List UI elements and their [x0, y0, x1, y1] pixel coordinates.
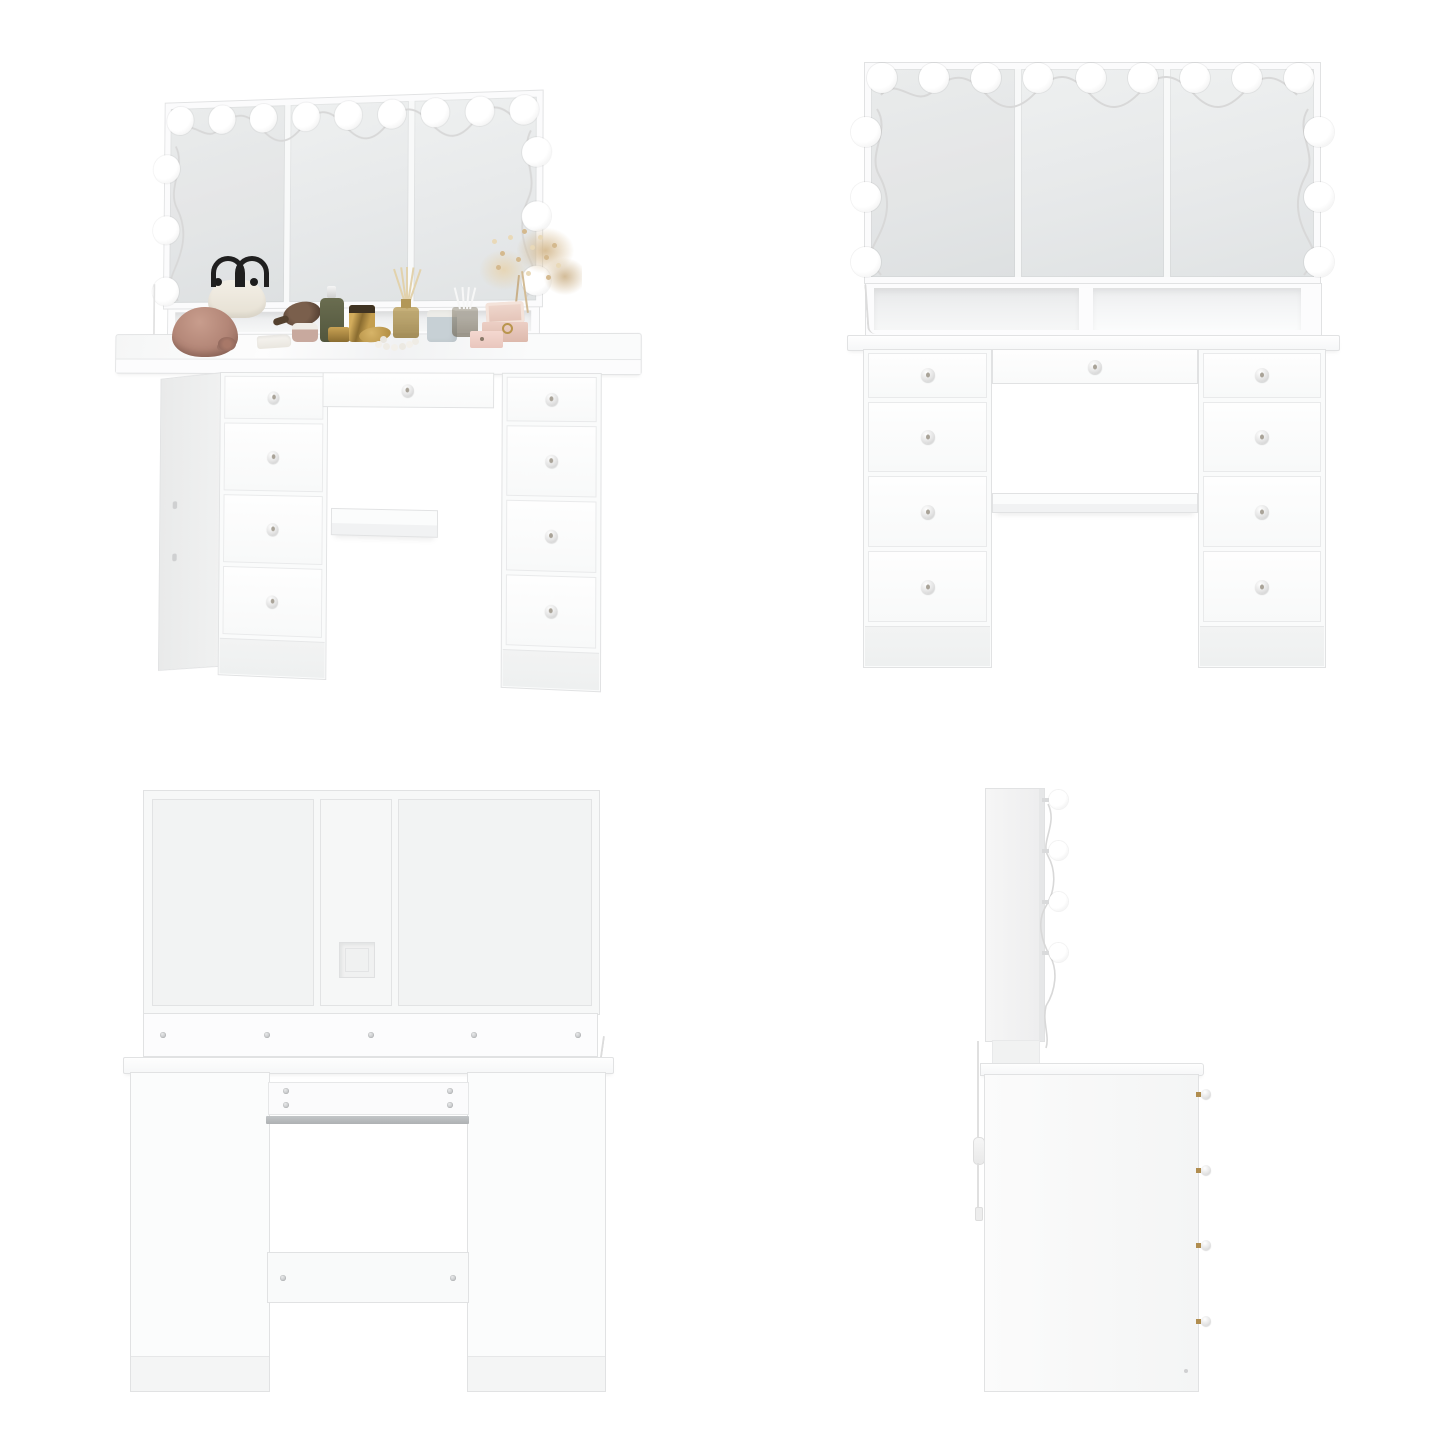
light-bulb-icon [154, 155, 181, 184]
drawer-knob [268, 391, 280, 404]
mirror-left-bulbs [851, 117, 881, 277]
drawer-knob [1196, 1239, 1212, 1251]
light-bulb-icon [1049, 892, 1068, 911]
cabinet-side-panel [984, 1074, 1199, 1392]
screw-icon [368, 1032, 374, 1038]
back-panel-left [152, 799, 314, 1006]
drawer [224, 422, 324, 492]
left-drawer-pedestal [863, 349, 992, 668]
vanity-angled-view [75, 55, 655, 715]
light-bulb-icon [1284, 63, 1314, 93]
mirror-top-bulbs [867, 63, 1314, 93]
light-bulb-icon [153, 216, 180, 245]
light-bulb-icon [971, 63, 1001, 93]
knee-space-shelf [992, 493, 1198, 513]
screw-icon [447, 1088, 453, 1094]
light-bulb-icon [1049, 943, 1068, 962]
cabinet-left-side-panel [158, 372, 223, 671]
light-bulb-icon [1304, 182, 1334, 212]
drawer-knob [1255, 580, 1269, 594]
screw-icon [264, 1032, 270, 1038]
drawer-knob [545, 454, 558, 467]
mirror-center-pane [1015, 69, 1165, 277]
vanity-back-view [120, 785, 615, 1397]
light-bulb-icon [1232, 63, 1262, 93]
lower-crossbar [267, 1252, 469, 1303]
left-drawer-pedestal [218, 372, 329, 680]
light-bulb-icon [919, 63, 949, 93]
right-drawer-stack [1199, 350, 1325, 625]
drawer-slide-rail [266, 1116, 469, 1124]
left-drawer-stack [864, 350, 991, 625]
vanity-side-view [960, 785, 1280, 1397]
drawer-knob [921, 505, 935, 519]
light-bulb-icon [1049, 841, 1068, 860]
shelf-compartment [1093, 288, 1301, 330]
mirror-back-panel [143, 790, 600, 1015]
light-bulb-icon [421, 98, 450, 128]
light-bulb-icon [851, 182, 881, 212]
pedestal-plinth [865, 626, 990, 666]
light-bulb-icon [522, 266, 551, 296]
drawer-knob [921, 368, 935, 382]
light-bulb-icon [334, 101, 362, 131]
mirror-right-bulbs [522, 137, 552, 296]
drawer-knob [1255, 505, 1269, 519]
mirror-left-pane [871, 69, 1015, 277]
screw-icon [283, 1102, 289, 1108]
mirror-right-pane [1164, 69, 1314, 277]
power-outlet-mark [172, 553, 177, 561]
drawer-knob [401, 384, 413, 397]
drawer-knob [1196, 1315, 1212, 1327]
light-bulb-icon [522, 137, 551, 167]
light-bulb-icon [292, 102, 320, 132]
power-outlet-mark [173, 501, 177, 509]
drawer-knob [1255, 368, 1269, 382]
drawer-knob [267, 451, 279, 464]
foot-screw [1184, 1369, 1188, 1373]
right-drawer-pedestal [1198, 349, 1326, 668]
open-shelf-hutch [865, 283, 1322, 337]
light-bulb-icon [1304, 117, 1334, 147]
back-panel-right [398, 799, 592, 1006]
screw-icon [447, 1102, 453, 1108]
drawer [868, 353, 987, 398]
left-drawer-stack [219, 373, 327, 641]
light-bulb-icon [465, 96, 494, 126]
vanity-angled-structure [109, 54, 655, 721]
screw-icon [575, 1032, 581, 1038]
right-pedestal-back [467, 1072, 606, 1392]
light-bulb-icon [1180, 63, 1210, 93]
drawer [506, 500, 597, 573]
drawer [224, 376, 323, 420]
light-bulb-icon [1023, 63, 1053, 93]
drawer-knob [921, 430, 935, 444]
pedestal-plinth [503, 649, 599, 690]
drawer [868, 402, 987, 473]
product-image-canvas [0, 0, 1445, 1445]
drawer-knobs-profile [1196, 1088, 1216, 1327]
trifold-mirror [865, 63, 1320, 283]
drawer [868, 476, 987, 547]
drawer-knob [1196, 1088, 1212, 1100]
cord-plug [975, 1207, 983, 1221]
mirror-side-profile [985, 788, 1045, 1042]
drawer [507, 377, 597, 422]
drawer [1203, 476, 1321, 547]
mirror-side-bulbs [1048, 790, 1068, 962]
knee-space-shelf [331, 508, 438, 538]
drawer-knob [1196, 1164, 1212, 1176]
cable-access-hole [339, 942, 375, 978]
screw-icon [471, 1032, 477, 1038]
drawer [1203, 551, 1321, 622]
light-bulb-icon [1128, 63, 1158, 93]
shelf-compartment [175, 311, 343, 332]
center-drawer [992, 349, 1198, 384]
right-drawer-stack [502, 374, 601, 652]
mirror-right-bulbs [1304, 117, 1334, 277]
screw-icon [450, 1275, 456, 1281]
left-pedestal-back [130, 1072, 270, 1392]
light-bulb-icon [1049, 790, 1068, 809]
glass-tabletop [115, 333, 642, 375]
drawer [1203, 353, 1321, 398]
screw-icon [280, 1275, 286, 1281]
back-panel-center-strip [320, 799, 392, 1006]
light-bulb-icon [867, 63, 897, 93]
light-bulb-icon [167, 106, 194, 135]
drawer-knob [266, 595, 278, 608]
drawer [506, 425, 596, 497]
power-cord [977, 1041, 979, 1137]
drawer-back-board [268, 1082, 469, 1115]
light-bulb-icon [1304, 247, 1334, 277]
pedestal-plinth [220, 638, 325, 678]
right-drawer-pedestal [501, 373, 602, 693]
open-shelf-hutch [167, 306, 540, 336]
power-cord [977, 1163, 979, 1207]
drawer [506, 574, 597, 648]
drawer [223, 566, 323, 638]
light-bulb-icon [1076, 63, 1106, 93]
light-bulb-icon [851, 117, 881, 147]
drawer [223, 494, 323, 565]
center-drawer [322, 372, 494, 408]
drawer-knob [544, 605, 557, 618]
light-bulb-icon [250, 104, 277, 133]
drawer-knob [921, 580, 935, 594]
shelf-compartment [356, 310, 531, 331]
mirror-support-riser [992, 1040, 1040, 1065]
pedestal-plinth [1200, 626, 1324, 666]
drawer-knob [545, 393, 558, 406]
light-bulb-icon [208, 105, 235, 134]
drawer-knob [545, 529, 558, 542]
vanity-front-view [845, 55, 1340, 670]
back-support-rail [143, 1013, 598, 1057]
drawer-knob [267, 523, 279, 536]
drawer-knob [1255, 430, 1269, 444]
screw-icon [283, 1088, 289, 1094]
screw-icon [160, 1032, 166, 1038]
light-bulb-icon [851, 247, 881, 277]
light-bulb-icon [377, 99, 405, 129]
drawer [868, 551, 987, 622]
light-bulb-icon [522, 201, 551, 231]
drawer [1203, 402, 1321, 473]
drawer-knob [1088, 360, 1102, 374]
light-bulb-icon [510, 95, 539, 125]
shelf-compartment [874, 288, 1079, 330]
